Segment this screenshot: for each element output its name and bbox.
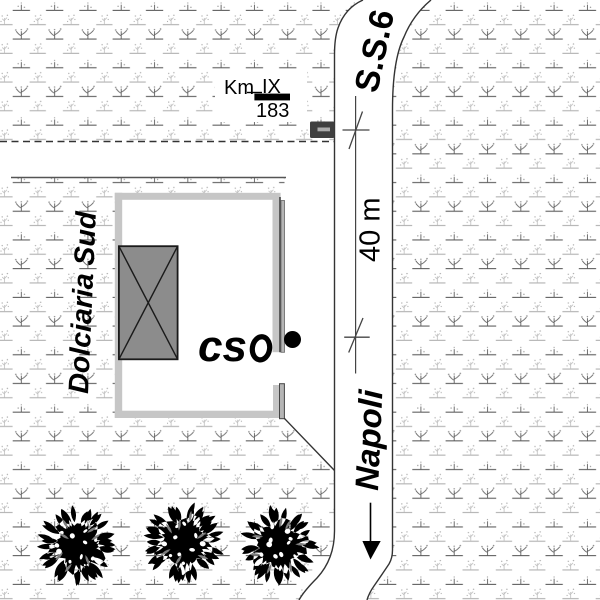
svg-text:Napoli: Napoli [348,388,389,491]
svg-text:Km: Km [224,77,254,99]
svg-text:40 m: 40 m [355,198,387,262]
svg-text:183: 183 [256,100,289,122]
svg-text:cs: cs [198,322,247,371]
